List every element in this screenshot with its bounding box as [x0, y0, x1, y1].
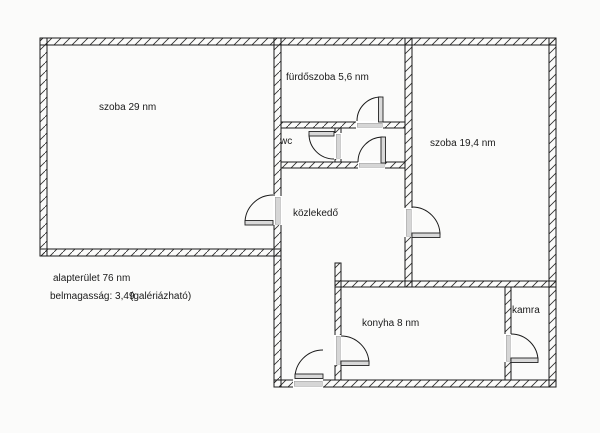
- annotations: alapterület 76 nm belmagasság: 3,49 (gal…: [50, 273, 191, 302]
- door-konyha: [341, 336, 369, 366]
- room-label-kozlekedo: közlekedő: [293, 208, 338, 219]
- jamb-szoba194: [406, 209, 411, 236]
- room-label-szoba194: szoba 19,4 nm: [430, 138, 496, 149]
- wall-kamra-left: [505, 287, 511, 380]
- wall-top-exterior: [40, 38, 556, 45]
- annotation-total-area: alapterület 76 nm: [53, 273, 130, 284]
- wall-wc-bottom: [281, 162, 405, 168]
- door-leaf: [245, 221, 273, 226]
- door-leaf: [341, 361, 369, 366]
- door-swing-arc: [309, 134, 334, 159]
- room-label-kamra: kamra: [512, 305, 540, 316]
- floor-plan-page: szoba 29 nm fürdőszoba 5,6 nm wc szoba 1…: [0, 0, 600, 433]
- room-label-furdoszoba: fürdőszoba 5,6 nm: [286, 72, 369, 83]
- door-leaf: [309, 132, 334, 137]
- door-leaf: [381, 137, 386, 163]
- door-entrance: [295, 350, 323, 379]
- wall-konyha-top: [335, 281, 556, 287]
- wall-szoba29-bottom: [40, 249, 281, 256]
- door-swing-arc: [245, 195, 273, 223]
- jamb-passage: [359, 163, 384, 167]
- wall-right-exterior: [549, 38, 556, 387]
- door-wc: [309, 132, 334, 160]
- door-kamra: [511, 334, 538, 363]
- room-label-wc: wc: [279, 136, 292, 147]
- door-swing-arc: [511, 334, 538, 361]
- door-leaf: [379, 97, 384, 122]
- jamb-kamra: [506, 335, 510, 361]
- door-leaf: [412, 233, 440, 238]
- door-swing-arc: [341, 336, 369, 364]
- door-swing-arc: [412, 207, 440, 235]
- jamb-entrance: [294, 381, 322, 386]
- door-szoba194: [412, 207, 440, 238]
- annotation-ceiling-height: belmagasság: 3,49: [50, 291, 135, 302]
- wall-left-exterior: [40, 38, 47, 256]
- door-swing-arc: [358, 137, 383, 162]
- room-label-szoba29: szoba 29 nm: [99, 102, 156, 113]
- jamb-wc: [336, 134, 340, 158]
- jamb-konyha: [336, 336, 340, 364]
- door-leaf: [295, 374, 323, 379]
- room-label-konyha: konyha 8 nm: [362, 318, 419, 329]
- wall-szoba194-left: [405, 38, 412, 287]
- annotation-note: (galériázható): [130, 291, 191, 302]
- door-leaf: [511, 358, 538, 363]
- door-openings: [273, 121, 512, 388]
- wall-furdoszoba-bottom: [281, 122, 405, 128]
- jamb-szoba29: [275, 197, 280, 224]
- door-furdoszoba: [357, 97, 383, 122]
- jamb-furdoszoba: [357, 123, 382, 127]
- door-swing-arc: [357, 97, 381, 121]
- door-szoba29: [245, 195, 273, 225]
- door-passage: [358, 137, 386, 163]
- floor-plan-drawing: szoba 29 nm fürdőszoba 5,6 nm wc szoba 1…: [0, 0, 600, 433]
